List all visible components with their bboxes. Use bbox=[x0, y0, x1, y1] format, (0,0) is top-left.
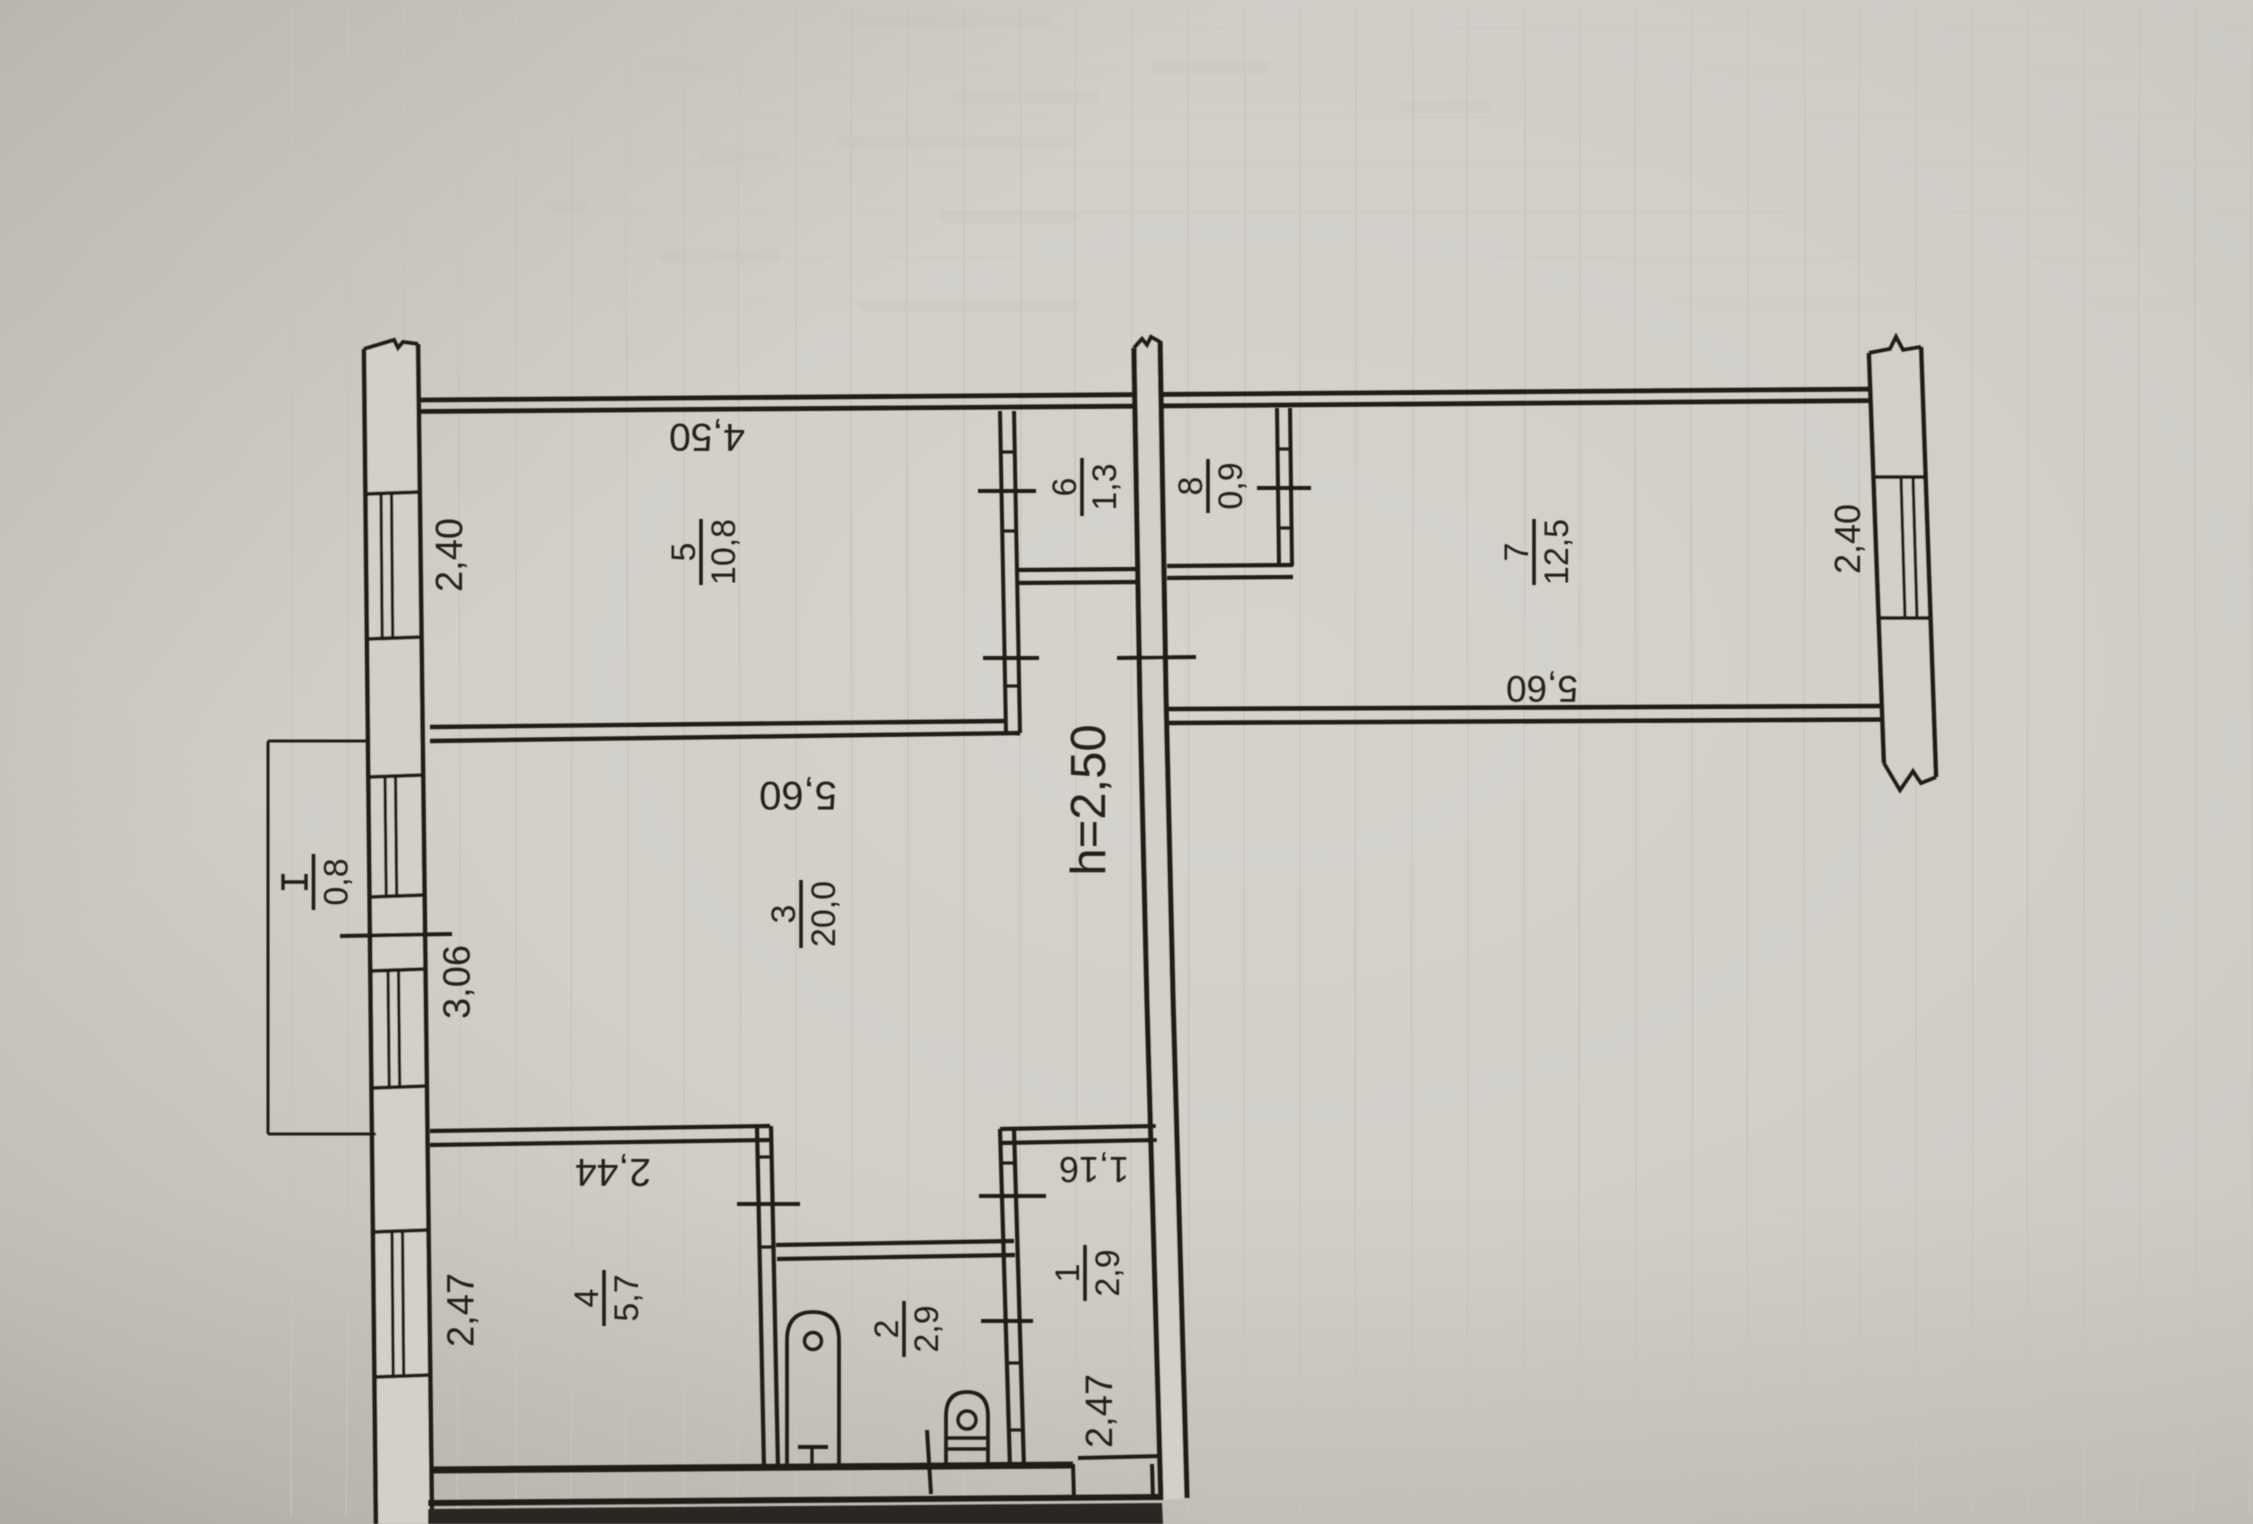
svg-text:2: 2 bbox=[868, 1320, 906, 1339]
svg-text:2,9: 2,9 bbox=[1089, 1249, 1127, 1296]
svg-text:2,44: 2,44 bbox=[575, 1150, 651, 1193]
svg-text:20,0: 20,0 bbox=[805, 881, 843, 947]
svg-text:10,8: 10,8 bbox=[705, 519, 743, 585]
svg-text:4: 4 bbox=[568, 1289, 606, 1308]
svg-text:1,3: 1,3 bbox=[1086, 463, 1124, 510]
svg-text:3: 3 bbox=[765, 905, 803, 924]
svg-text:4,50: 4,50 bbox=[669, 415, 745, 458]
svg-text:1,16: 1,16 bbox=[1059, 1149, 1129, 1190]
svg-text:2,9: 2,9 bbox=[908, 1305, 946, 1352]
svg-text:2,40: 2,40 bbox=[429, 518, 471, 592]
svg-text:1: 1 bbox=[1049, 1264, 1087, 1283]
svg-text:5: 5 bbox=[665, 543, 703, 562]
svg-text:5,60: 5,60 bbox=[1506, 668, 1578, 709]
svg-text:0,9: 0,9 bbox=[1212, 462, 1250, 509]
svg-text:12,5: 12,5 bbox=[1538, 519, 1576, 585]
svg-text:0,8: 0,8 bbox=[318, 858, 356, 905]
svg-text:7: 7 bbox=[1498, 543, 1536, 562]
svg-text:2,47: 2,47 bbox=[441, 1273, 483, 1347]
svg-text:2,40: 2,40 bbox=[1827, 504, 1868, 574]
svg-text:6: 6 bbox=[1046, 478, 1084, 497]
svg-text:8: 8 bbox=[1172, 477, 1210, 496]
svg-text:5,7: 5,7 bbox=[608, 1274, 646, 1321]
svg-text:2,47: 2,47 bbox=[1079, 1374, 1121, 1448]
svg-text:3,06: 3,06 bbox=[437, 945, 479, 1019]
svg-text:h=2,50: h=2,50 bbox=[1062, 724, 1116, 875]
svg-text:5,60: 5,60 bbox=[759, 773, 837, 817]
